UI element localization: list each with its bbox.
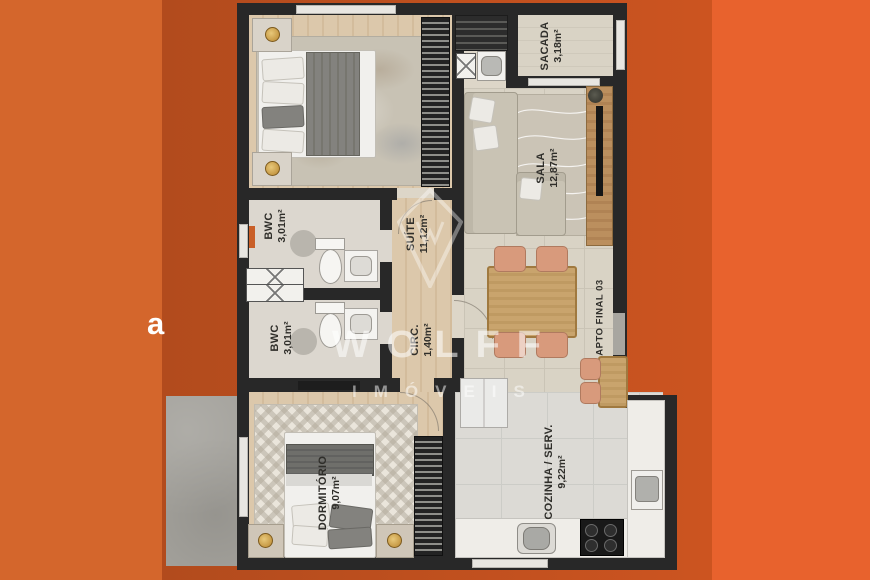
kitchen-window — [472, 559, 548, 568]
wall-right-lower — [663, 395, 677, 570]
lamp-icon — [387, 533, 402, 548]
lamp-icon — [258, 533, 273, 548]
burner-icon — [604, 524, 617, 537]
floorplan-canvas: a — [0, 0, 870, 580]
stove — [580, 519, 624, 556]
sink-icon — [350, 256, 372, 276]
wall-niche — [613, 313, 625, 355]
plant-pot — [588, 88, 603, 103]
bwc1-rug — [290, 230, 317, 257]
service-shaft — [456, 53, 476, 79]
wall-corridor-b — [380, 262, 392, 312]
room-label-bwc1: BWC 3,01m² — [262, 186, 290, 266]
background-band-right — [712, 0, 870, 580]
watermark-logo — [397, 188, 463, 288]
laundry-tank-bowl — [481, 56, 502, 76]
service-tank-bowl — [635, 476, 659, 502]
room-label-cozinha: COZINHA / SERV. 9,22m² — [542, 417, 570, 527]
dormitorio-window — [239, 437, 248, 517]
kitchen-sink-bowl — [523, 527, 550, 550]
room-label-sacada: SACADA 3,18m² — [538, 11, 566, 81]
burner-icon — [604, 539, 617, 552]
bwc1-window — [239, 224, 248, 258]
toilet-icon — [319, 249, 342, 284]
suite-pillow — [261, 81, 304, 105]
tv — [596, 106, 603, 196]
room-label-sala: SALA 12,87m² — [534, 120, 562, 216]
lamp-icon — [265, 27, 280, 42]
background-band-left — [0, 0, 162, 580]
room-label-bwc2: BWC 3,01m² — [268, 298, 296, 378]
concrete-ledge — [166, 396, 237, 566]
suite-wardrobe — [421, 17, 450, 187]
wall-dorm-right — [443, 392, 455, 556]
edge-letter: a — [147, 306, 164, 342]
wall-tv-shelf — [298, 381, 360, 390]
burner-icon — [585, 524, 598, 537]
room-label-dormitorio: DORMITÓRIO 9,07m² — [316, 445, 344, 541]
drying-rack — [455, 15, 508, 51]
wall-bottom — [237, 556, 677, 570]
sofa-cushion — [472, 124, 499, 151]
wall-corridor-a — [380, 200, 392, 230]
suite-bed-blanket — [306, 52, 360, 156]
sofa-cushion — [468, 96, 496, 124]
watermark-tagline: IMÓVEIS — [352, 382, 542, 402]
unit-label: APTO FINAL 03 — [595, 263, 608, 373]
dining-chair — [536, 246, 568, 272]
suite-pillow — [261, 129, 304, 154]
suite-window — [296, 5, 396, 14]
desk-chair — [580, 382, 601, 404]
lamp-icon — [265, 161, 280, 176]
dining-chair — [494, 246, 526, 272]
suite-pillow — [261, 57, 304, 82]
burner-icon — [585, 539, 598, 552]
dormitorio-wardrobe — [414, 436, 443, 556]
wall-suite-bottom-a — [237, 188, 397, 200]
sacada-window — [616, 20, 625, 70]
watermark-brand: WOLFF — [332, 324, 558, 367]
bwc1-wall-art — [249, 226, 255, 248]
suite-pillow — [261, 105, 304, 129]
